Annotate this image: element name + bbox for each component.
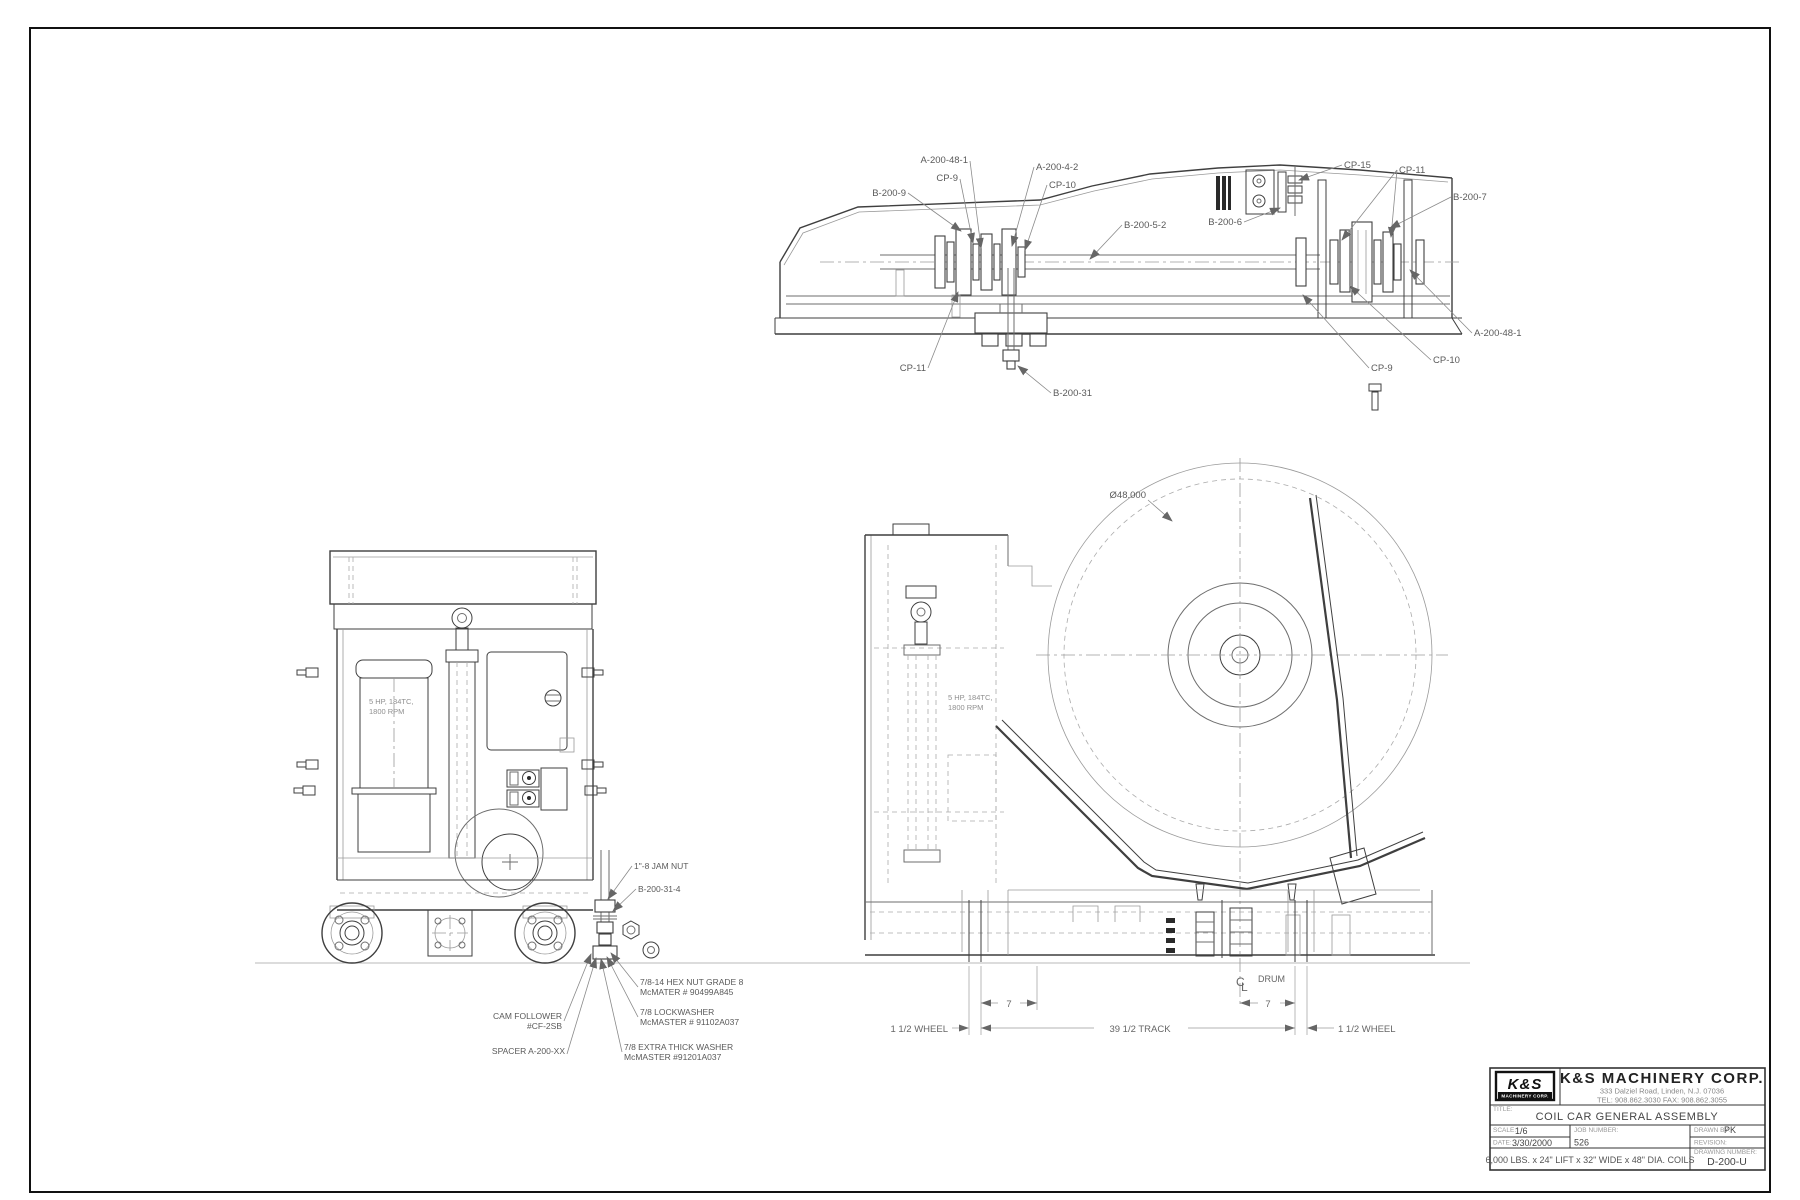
dim-drum: DRUM bbox=[1258, 974, 1285, 984]
coil-side-view-geometry bbox=[865, 458, 1448, 1008]
dim-wheel-left: 1 1/2 WHEEL bbox=[890, 1024, 948, 1035]
capacity-spec: 6,000 LBS. x 24" LIFT x 32" WIDE x 48" D… bbox=[1485, 1155, 1694, 1165]
dim-wheel-right: 1 1/2 WHEEL bbox=[1338, 1024, 1396, 1035]
job-number-value: 526 bbox=[1574, 1138, 1589, 1148]
callout: McMASTER #91201A037 bbox=[624, 1052, 722, 1062]
callout: 7/8 EXTRA THICK WASHER bbox=[624, 1042, 733, 1052]
top-side-view-geometry bbox=[775, 165, 1462, 410]
part-label: B-200-31 bbox=[1053, 388, 1092, 399]
part-label: CP-9 bbox=[1371, 363, 1393, 374]
part-label: CP-11 bbox=[1399, 165, 1425, 176]
callout: SPACER A-200-XX bbox=[492, 1046, 565, 1056]
part-label: CP-10 bbox=[1049, 180, 1076, 191]
callout: #CF-2SB bbox=[527, 1021, 562, 1031]
motor-spec: 5 HP, 184TC, bbox=[369, 697, 413, 706]
drawing-number-label: DRAWING NUMBER: bbox=[1694, 1149, 1757, 1156]
drawing-title: COIL CAR GENERAL ASSEMBLY bbox=[1536, 1111, 1719, 1123]
date-label: DATE: bbox=[1493, 1140, 1512, 1147]
centerline-symbol-l: L bbox=[1241, 980, 1248, 994]
company-phone: TEL: 908.862.3030 FAX: 908.862.3055 bbox=[1597, 1096, 1727, 1105]
callout: CAM FOLLOWER bbox=[493, 1011, 562, 1021]
part-label: A-200-48-1 bbox=[1474, 328, 1522, 339]
scale-value: 1/6 bbox=[1515, 1126, 1528, 1136]
company-address: 333 Dalziel Road, Linden, N.J. 07036 bbox=[1600, 1087, 1724, 1096]
callout: 1"-8 JAM NUT bbox=[634, 861, 689, 871]
part-label: A-200-4-2 bbox=[1036, 162, 1078, 173]
dim-track: 39 1/2 TRACK bbox=[1109, 1024, 1171, 1035]
drawing-number-value: D-200-U bbox=[1707, 1156, 1747, 1168]
job-number-label: JOB NUMBER: bbox=[1574, 1127, 1619, 1134]
callout: McMASTER # 91102A037 bbox=[640, 1017, 739, 1027]
coil-side-view-dimensions: 7 7 39 1/2 TRACK 1 1/2 WHEEL 1 1/2 WHEEL… bbox=[890, 966, 1395, 1035]
title-block: K&S MACHINERY CORP. K&S MACHINERY CORP. … bbox=[1485, 1068, 1765, 1170]
part-label: B-200-5-2 bbox=[1124, 220, 1166, 231]
front-view-geometry bbox=[294, 551, 659, 963]
callout: McMATER # 90499A845 bbox=[640, 987, 734, 997]
company-logo: K&S MACHINERY CORP. bbox=[1496, 1072, 1554, 1100]
motor-spec: 1800 RPM bbox=[948, 703, 983, 712]
dim-seven-left: 7 bbox=[1006, 999, 1011, 1010]
drawn-by-value: PK bbox=[1724, 1125, 1736, 1135]
drawing-sheet: B-200-9 CP-9 A-200-48-1 A-200-4-2 CP-10 … bbox=[0, 0, 1800, 1200]
callout: 7/8 LOCKWASHER bbox=[640, 1007, 714, 1017]
sheet-border bbox=[30, 28, 1770, 1192]
revision-label: REVISION: bbox=[1694, 1140, 1727, 1147]
callout: 7/8-14 HEX NUT GRADE 8 bbox=[640, 977, 744, 987]
part-label: A-200-48-1 bbox=[920, 155, 968, 166]
part-label: B-200-6 bbox=[1208, 217, 1242, 228]
part-label: CP-11 bbox=[900, 363, 926, 374]
dim-seven-right: 7 bbox=[1265, 999, 1270, 1010]
part-label: CP-15 bbox=[1344, 160, 1371, 171]
motor-spec: 1800 RPM bbox=[369, 707, 404, 716]
company-name: K&S MACHINERY CORP. bbox=[1560, 1070, 1764, 1087]
scale-label: SCALE: bbox=[1493, 1127, 1516, 1134]
date-value: 3/30/2000 bbox=[1512, 1138, 1552, 1148]
title-label: TITLE: bbox=[1493, 1106, 1513, 1113]
callout: B-200-31-4 bbox=[638, 884, 681, 894]
part-label: CP-9 bbox=[936, 173, 958, 184]
logo-subtext: MACHINERY CORP. bbox=[1501, 1094, 1548, 1099]
logo-text: K&S bbox=[1508, 1076, 1543, 1093]
motor-spec: 5 HP, 184TC, bbox=[948, 693, 992, 702]
part-label: B-200-7 bbox=[1453, 192, 1487, 203]
part-label: CP-10 bbox=[1433, 355, 1460, 366]
coil-side-view-labels: Ø48.000 5 HP, 184TC, 1800 RPM bbox=[948, 490, 1172, 712]
coil-diameter-label: Ø48.000 bbox=[1110, 490, 1146, 501]
part-label: B-200-9 bbox=[872, 188, 906, 199]
